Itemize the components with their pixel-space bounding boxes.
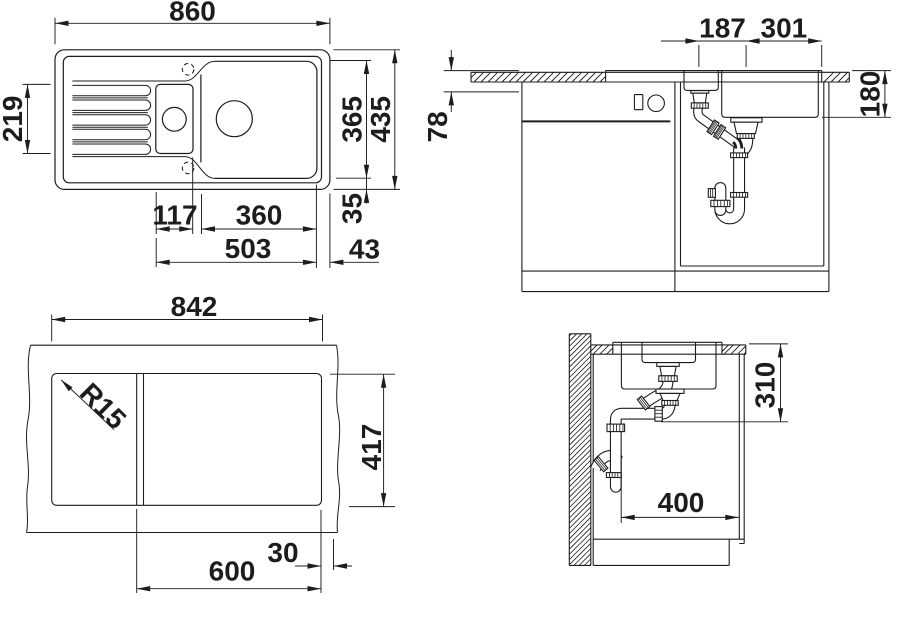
svg-text:187: 187 <box>699 13 746 44</box>
svg-text:503: 503 <box>225 233 272 264</box>
svg-text:180: 180 <box>855 71 886 118</box>
svg-text:43: 43 <box>349 234 380 265</box>
svg-text:219: 219 <box>0 96 28 143</box>
svg-text:417: 417 <box>356 424 387 471</box>
svg-text:842: 842 <box>171 291 218 322</box>
svg-text:301: 301 <box>761 13 808 44</box>
svg-text:365: 365 <box>337 96 368 143</box>
svg-text:310: 310 <box>750 362 781 409</box>
svg-text:R15: R15 <box>74 377 132 435</box>
svg-text:860: 860 <box>169 0 216 26</box>
svg-text:600: 600 <box>209 555 256 586</box>
svg-text:35: 35 <box>337 193 368 224</box>
svg-text:78: 78 <box>422 111 453 142</box>
svg-text:30: 30 <box>267 537 298 568</box>
svg-text:400: 400 <box>658 487 705 518</box>
svg-text:117: 117 <box>152 200 197 231</box>
svg-text:435: 435 <box>365 96 396 143</box>
svg-text:360: 360 <box>236 200 283 231</box>
